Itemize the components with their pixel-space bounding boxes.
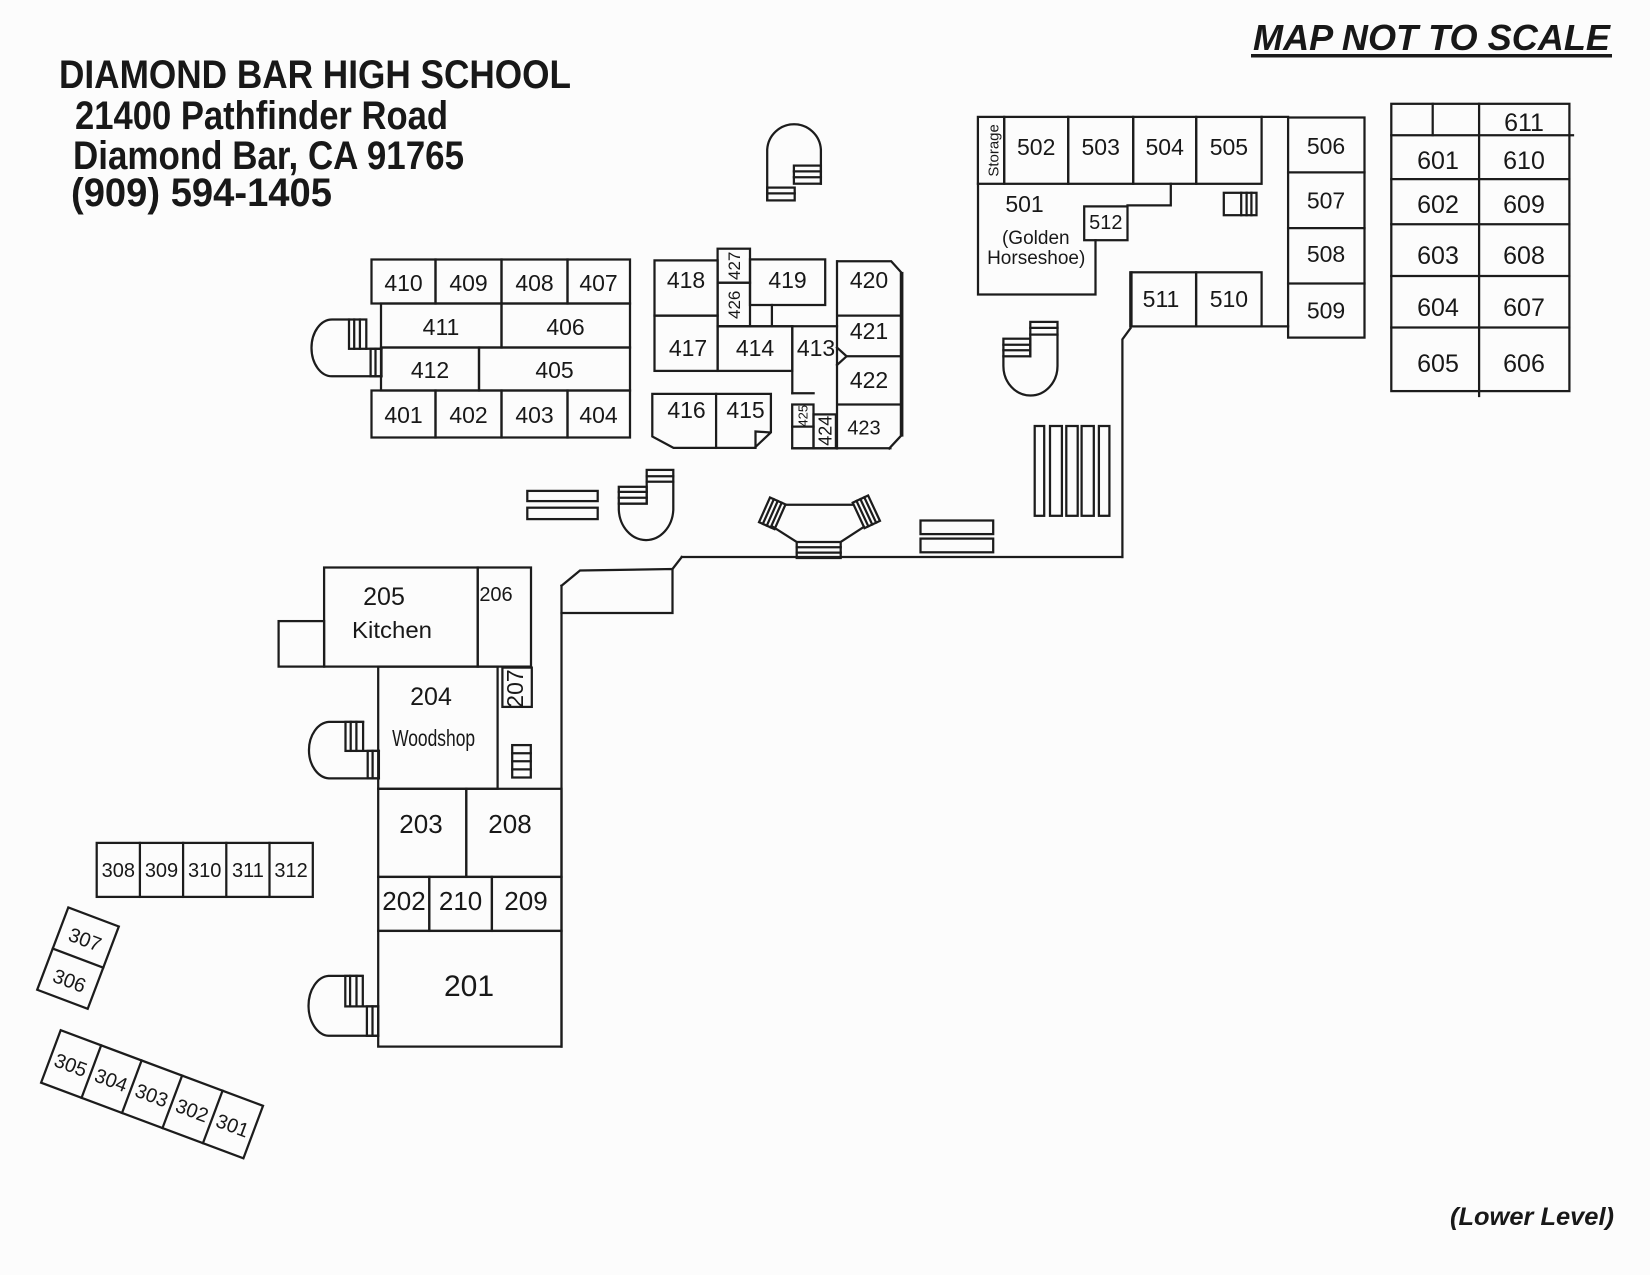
- svg-text:414: 414: [736, 335, 775, 361]
- svg-text:310: 310: [188, 860, 221, 882]
- svg-text:502: 502: [1017, 134, 1055, 160]
- svg-text:201: 201: [444, 970, 494, 1003]
- svg-text:209: 209: [504, 886, 547, 916]
- svg-text:416: 416: [667, 397, 705, 423]
- svg-text:603: 603: [1417, 242, 1459, 270]
- svg-text:308: 308: [102, 860, 135, 882]
- svg-text:420: 420: [850, 267, 888, 293]
- svg-text:512: 512: [1089, 212, 1122, 234]
- svg-text:Storage: Storage: [986, 124, 1003, 177]
- svg-text:418: 418: [667, 267, 705, 293]
- svg-text:413: 413: [797, 335, 835, 361]
- svg-text:404: 404: [579, 402, 618, 428]
- svg-text:205: 205: [363, 583, 405, 611]
- svg-text:412: 412: [411, 357, 449, 383]
- svg-text:210: 210: [439, 886, 482, 916]
- svg-text:608: 608: [1503, 242, 1545, 270]
- svg-text:427: 427: [725, 252, 744, 280]
- svg-text:406: 406: [546, 314, 584, 340]
- svg-text:DIAMOND BAR HIGH SCHOOL: DIAMOND BAR HIGH SCHOOL: [59, 53, 571, 97]
- svg-text:Woodshop: Woodshop: [392, 725, 475, 751]
- svg-text:503: 503: [1082, 134, 1120, 160]
- svg-text:417: 417: [669, 335, 707, 361]
- svg-text:509: 509: [1307, 298, 1345, 324]
- svg-text:423: 423: [847, 418, 880, 440]
- svg-text:507: 507: [1307, 188, 1345, 214]
- svg-text:424: 424: [816, 416, 836, 446]
- svg-text:602: 602: [1417, 191, 1459, 219]
- svg-text:Kitchen: Kitchen: [352, 617, 432, 643]
- svg-text:Horseshoe): Horseshoe): [987, 248, 1085, 269]
- svg-text:510: 510: [1210, 286, 1248, 312]
- svg-text:410: 410: [384, 270, 422, 296]
- svg-text:609: 609: [1503, 191, 1545, 219]
- svg-text:601: 601: [1417, 147, 1459, 175]
- svg-text:MAP NOT TO SCALE: MAP NOT TO SCALE: [1253, 17, 1611, 58]
- svg-text:611: 611: [1504, 109, 1544, 137]
- svg-text:(Lower Level): (Lower Level): [1450, 1203, 1614, 1231]
- svg-text:504: 504: [1146, 134, 1185, 160]
- svg-text:405: 405: [535, 357, 573, 383]
- svg-text:508: 508: [1307, 241, 1345, 267]
- svg-text:403: 403: [515, 402, 553, 428]
- svg-text:202: 202: [382, 886, 425, 916]
- svg-text:312: 312: [274, 860, 307, 882]
- svg-text:(909) 594-1405: (909) 594-1405: [71, 171, 332, 215]
- svg-text:501: 501: [1005, 191, 1043, 217]
- svg-text:402: 402: [449, 402, 487, 428]
- svg-text:422: 422: [850, 367, 888, 393]
- svg-text:203: 203: [399, 809, 442, 839]
- svg-text:206: 206: [479, 584, 512, 606]
- svg-text:610: 610: [1503, 147, 1545, 175]
- svg-text:606: 606: [1503, 350, 1545, 378]
- svg-text:607: 607: [1503, 294, 1545, 322]
- svg-text:407: 407: [579, 270, 617, 296]
- svg-text:311: 311: [232, 860, 264, 882]
- svg-text:408: 408: [515, 270, 553, 296]
- svg-text:426: 426: [725, 291, 744, 319]
- svg-text:505: 505: [1210, 134, 1248, 160]
- svg-text:401: 401: [384, 402, 422, 428]
- svg-text:409: 409: [449, 270, 487, 296]
- svg-text:605: 605: [1417, 350, 1459, 378]
- svg-text:208: 208: [488, 809, 531, 839]
- svg-text:604: 604: [1417, 294, 1459, 322]
- svg-text:21400 Pathfinder Road: 21400 Pathfinder Road: [75, 94, 448, 138]
- svg-text:204: 204: [410, 683, 452, 711]
- svg-text:415: 415: [726, 397, 764, 423]
- svg-text:(Golden: (Golden: [1002, 228, 1070, 249]
- svg-text:506: 506: [1307, 133, 1345, 159]
- svg-text:309: 309: [145, 860, 178, 882]
- svg-text:511: 511: [1143, 286, 1180, 312]
- svg-text:421: 421: [850, 318, 888, 344]
- svg-text:207: 207: [502, 669, 528, 707]
- svg-text:411: 411: [423, 314, 460, 340]
- svg-text:425: 425: [796, 405, 811, 427]
- svg-text:419: 419: [768, 267, 806, 293]
